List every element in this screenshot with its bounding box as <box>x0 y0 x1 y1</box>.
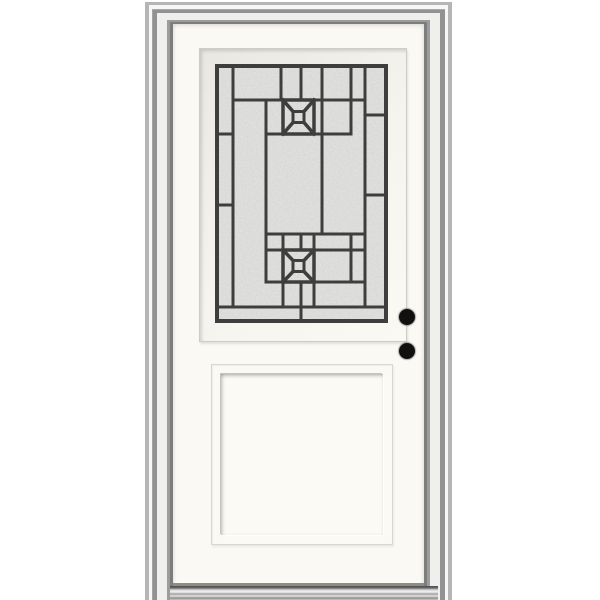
product-photo-canvas: { "scene": { "type": "product-photo", "s… <box>0 0 600 600</box>
door-bottom-panel-field <box>221 374 383 535</box>
lockset-bore-hole <box>399 343 415 359</box>
aluminum-sill <box>170 586 438 600</box>
glass-lite-frame <box>199 48 407 342</box>
deadbolt-bore-hole <box>399 309 415 325</box>
door-bottom-panel <box>211 364 393 545</box>
